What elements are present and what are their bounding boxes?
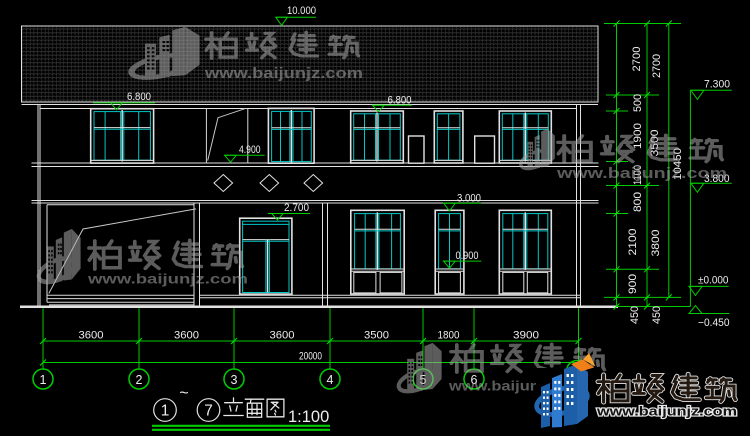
svg-text:2700: 2700 xyxy=(651,54,663,78)
svg-text:2.700: 2.700 xyxy=(284,202,309,214)
svg-text:2700: 2700 xyxy=(631,47,643,72)
svg-text:900: 900 xyxy=(627,274,639,294)
svg-text:www.baijunjz.com: www.baijunjz.com xyxy=(87,271,248,287)
svg-text:450: 450 xyxy=(651,306,663,324)
svg-text:www.baijunjz.com: www.baijunjz.com xyxy=(204,66,363,82)
svg-text:20000: 20000 xyxy=(299,351,322,363)
svg-text:450: 450 xyxy=(629,306,641,324)
svg-text:6.800: 6.800 xyxy=(388,95,412,107)
svg-text:10.000: 10.000 xyxy=(287,5,316,17)
svg-text:4.900: 4.900 xyxy=(239,144,261,156)
svg-text:1: 1 xyxy=(161,403,170,420)
svg-text:3600: 3600 xyxy=(79,330,104,342)
svg-text:~: ~ xyxy=(179,385,188,402)
svg-text:7: 7 xyxy=(204,403,213,420)
svg-text:1: 1 xyxy=(40,373,47,387)
svg-text:3: 3 xyxy=(231,373,238,387)
svg-text:3.000: 3.000 xyxy=(457,193,481,205)
svg-text:3600: 3600 xyxy=(174,330,199,342)
svg-text:1900: 1900 xyxy=(632,123,644,149)
svg-text:3900: 3900 xyxy=(513,330,539,342)
svg-text:500: 500 xyxy=(632,94,644,112)
svg-text:1:100: 1:100 xyxy=(288,408,329,426)
svg-text:800: 800 xyxy=(632,192,644,212)
svg-text:2: 2 xyxy=(136,373,143,387)
svg-text:2100: 2100 xyxy=(627,229,639,256)
svg-text:±0.000: ±0.000 xyxy=(698,275,729,287)
svg-text:3500: 3500 xyxy=(364,330,389,342)
svg-text:0.900: 0.900 xyxy=(456,250,479,262)
svg-text:3600: 3600 xyxy=(270,330,295,342)
svg-text:−0.450: −0.450 xyxy=(698,317,730,329)
svg-text:3800: 3800 xyxy=(650,230,662,257)
svg-text:6.800: 6.800 xyxy=(127,91,151,103)
svg-text:4: 4 xyxy=(327,373,334,387)
svg-text:1800: 1800 xyxy=(438,330,460,342)
svg-text:www.baijunjz.com: www.baijunjz.com xyxy=(556,166,727,182)
svg-text:7.300: 7.300 xyxy=(704,78,730,90)
svg-text:www.baijunjz.com: www.baijunjz.com xyxy=(596,404,737,419)
